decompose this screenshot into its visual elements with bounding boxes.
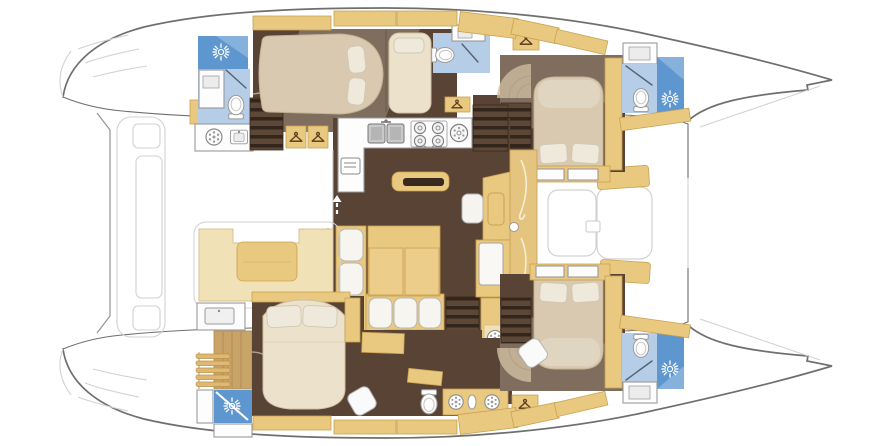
basin-icon (231, 130, 248, 144)
wc-icon (421, 390, 437, 414)
single-burner-icon (450, 124, 467, 141)
port-aft-head (190, 36, 250, 126)
porthole-drum-icon (206, 129, 222, 145)
floorplan-canvas (0, 0, 880, 446)
double-bed (259, 34, 383, 114)
pillow (571, 282, 599, 303)
pillow (539, 143, 567, 164)
door-handle (510, 223, 519, 232)
wc-icon (228, 95, 244, 118)
starboard-forward-head (619, 315, 690, 403)
port-forward-head-fwd (620, 43, 691, 131)
cushion (339, 229, 363, 261)
port-utility-counter (195, 124, 253, 151)
porthole-drum-icon (485, 395, 499, 409)
cushion (419, 298, 441, 328)
pillow (539, 282, 567, 303)
ladder (196, 352, 230, 389)
cushion (394, 298, 417, 328)
aft-platform (97, 113, 165, 337)
salon-table (368, 226, 440, 296)
oven-icon (341, 158, 360, 174)
pillow (347, 77, 367, 106)
vanity-desk (362, 332, 405, 353)
pillow (266, 305, 301, 328)
nav-desk (483, 172, 510, 240)
side-cabinet (605, 58, 622, 170)
bottle (468, 395, 476, 409)
porthole-drum-icon (449, 395, 463, 409)
wc-icon (633, 89, 648, 112)
catamaran-floorplan (0, 0, 880, 446)
wc-icon (633, 334, 648, 357)
starboard-aft-head (196, 303, 252, 437)
side-cabinet (605, 276, 622, 388)
companionway-stairs (501, 298, 531, 343)
nav-seat (462, 194, 483, 223)
dressing-floor (214, 331, 252, 389)
wc-icon (432, 48, 454, 63)
pillow (571, 143, 599, 164)
davit-platform (117, 117, 165, 337)
cushion (369, 298, 392, 328)
pillow (394, 38, 424, 53)
pillow (302, 305, 337, 328)
forward-sunpad (597, 187, 652, 259)
pillow (347, 45, 367, 74)
cushion (339, 263, 363, 295)
island-slot (403, 178, 444, 186)
side-shelf (345, 298, 360, 342)
hull-stairs (473, 105, 508, 151)
